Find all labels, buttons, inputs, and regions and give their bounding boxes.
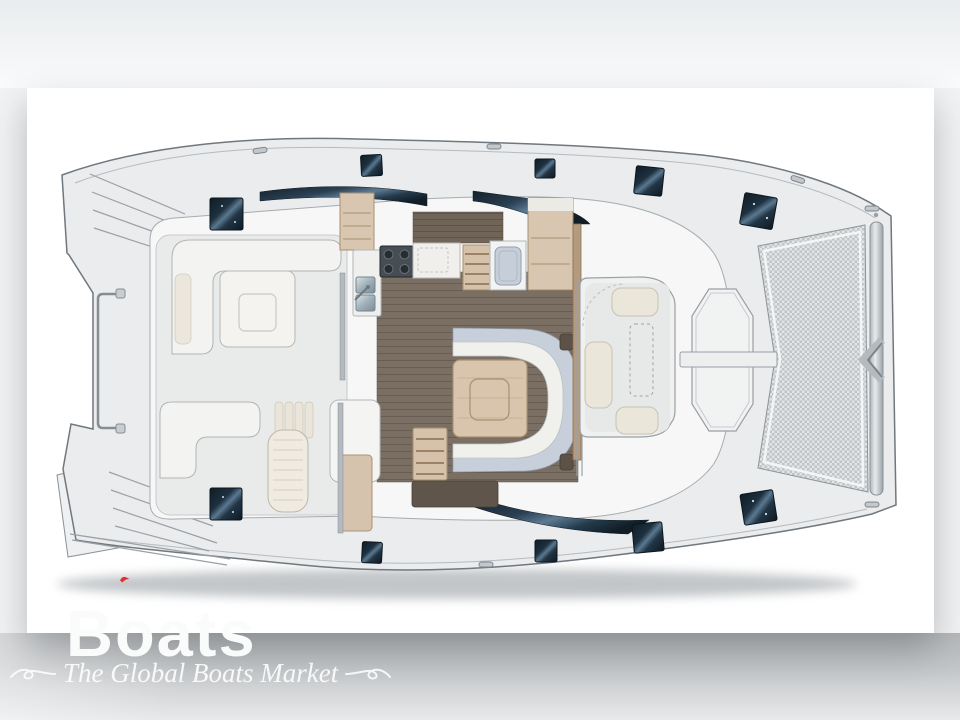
listing-photo-card (27, 88, 934, 633)
sliding-door-mullion (340, 273, 345, 380)
cleat-icon (479, 562, 493, 567)
red-logo-mark-icon (119, 575, 131, 584)
deck-hatch (632, 522, 664, 554)
salon-dinette (453, 328, 579, 472)
helm-lounger (268, 430, 308, 512)
cockpit-sofa-cushion (175, 274, 191, 344)
deck-hatch (535, 159, 555, 178)
deck-hatch (535, 540, 557, 562)
flourish-right-icon (345, 663, 391, 685)
watermark-tagline: The Global Boats Market (10, 658, 391, 689)
roof-hatch (210, 488, 242, 520)
watermark-tagline-text: The Global Boats Market (63, 658, 338, 689)
roof-hatch (210, 198, 243, 230)
armrest-bottom (560, 454, 573, 470)
galley-counter-walnut (413, 212, 503, 243)
deck-hatch (360, 154, 382, 176)
forward-seat-cushion-bottom (616, 407, 658, 434)
faucet-base (366, 285, 370, 289)
forward-cockpit (580, 277, 675, 437)
cleat-icon (865, 502, 879, 507)
hull-shadow (57, 569, 857, 599)
deck-hatch (634, 166, 665, 197)
galley-tall-cabinet (528, 198, 573, 290)
deck-hatch (361, 541, 382, 563)
boat-plan (27, 88, 934, 633)
dinette-table (453, 360, 527, 437)
cockpit-dining-table (220, 271, 295, 347)
wet-bar-cabinet (340, 193, 374, 250)
cabinet-top-shelf (528, 198, 573, 211)
side-wood-panel (340, 455, 372, 531)
deck-hatch (739, 192, 777, 229)
cleat-icon (487, 144, 501, 149)
beam-bolt-top (874, 213, 878, 217)
deck-hatch (740, 490, 777, 526)
windlass-crossbar (680, 352, 777, 367)
cleat-icon (865, 206, 879, 211)
page-background-top (0, 0, 960, 88)
forward-seat-cushion-top (612, 288, 658, 316)
window-mullion (338, 403, 343, 533)
armrest-top (560, 334, 573, 350)
forward-seat-cushion-left (585, 342, 612, 408)
flourish-left-icon (10, 663, 56, 685)
bow-crossbeam (870, 222, 883, 495)
storage-chest (412, 481, 498, 507)
starboard-companionway-steps (413, 428, 447, 480)
